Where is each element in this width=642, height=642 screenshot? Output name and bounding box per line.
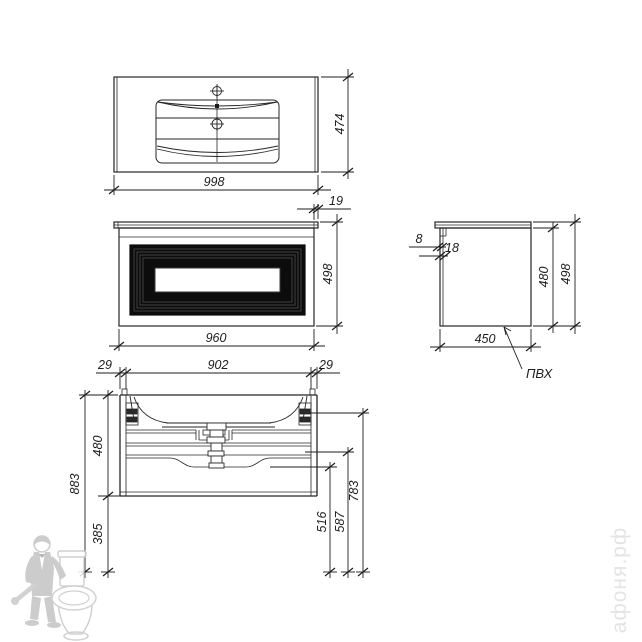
dim-section-inner-height: 480 bbox=[91, 436, 105, 457]
dim-section-floor-gap: 385 bbox=[91, 524, 105, 545]
dim-section-total-height: 883 bbox=[68, 474, 82, 495]
dim-section-inner-width: 902 bbox=[208, 358, 229, 372]
top-view bbox=[114, 77, 318, 172]
dim-side-panel: 8 bbox=[416, 232, 423, 246]
site-watermark: афоня.рф bbox=[608, 527, 631, 633]
section-left-dimensions bbox=[78, 390, 120, 578]
dim-side-total-height: 498 bbox=[559, 264, 573, 285]
top-view-dimensions bbox=[104, 69, 354, 195]
faucet-hole-icon bbox=[210, 84, 224, 98]
material-label-pvc: ПВХ bbox=[526, 366, 554, 381]
dim-section-level-3: 783 bbox=[347, 481, 361, 502]
drain-hole-icon bbox=[210, 117, 224, 131]
dim-overhang: 19 bbox=[329, 194, 343, 208]
dim-side-top: 18 bbox=[445, 241, 459, 255]
drawing-canvas: 998 474 19 960 498 bbox=[0, 0, 642, 642]
dim-section-level-2: 587 bbox=[333, 511, 347, 533]
plumber-logo-watermark bbox=[11, 536, 96, 640]
siphon-trap bbox=[207, 423, 226, 468]
drawer-front-panel bbox=[130, 245, 305, 315]
dim-top-depth: 474 bbox=[333, 114, 347, 135]
technical-drawing-svg: 998 474 19 960 498 bbox=[0, 0, 642, 642]
side-view bbox=[435, 222, 531, 326]
overflow-mark bbox=[215, 104, 219, 108]
dim-top-width: 998 bbox=[204, 175, 225, 189]
dim-front-width: 960 bbox=[206, 331, 227, 345]
dim-side-inner-height: 480 bbox=[537, 267, 551, 288]
dim-front-height: 498 bbox=[321, 264, 335, 285]
dim-section-side-right: 29 bbox=[318, 358, 333, 372]
basin-section bbox=[130, 396, 307, 427]
front-view bbox=[114, 222, 318, 326]
dim-side-depth: 450 bbox=[475, 332, 496, 346]
dim-section-side-left: 29 bbox=[97, 358, 112, 372]
section-view bbox=[120, 389, 317, 496]
dim-section-level-1: 516 bbox=[315, 512, 329, 533]
